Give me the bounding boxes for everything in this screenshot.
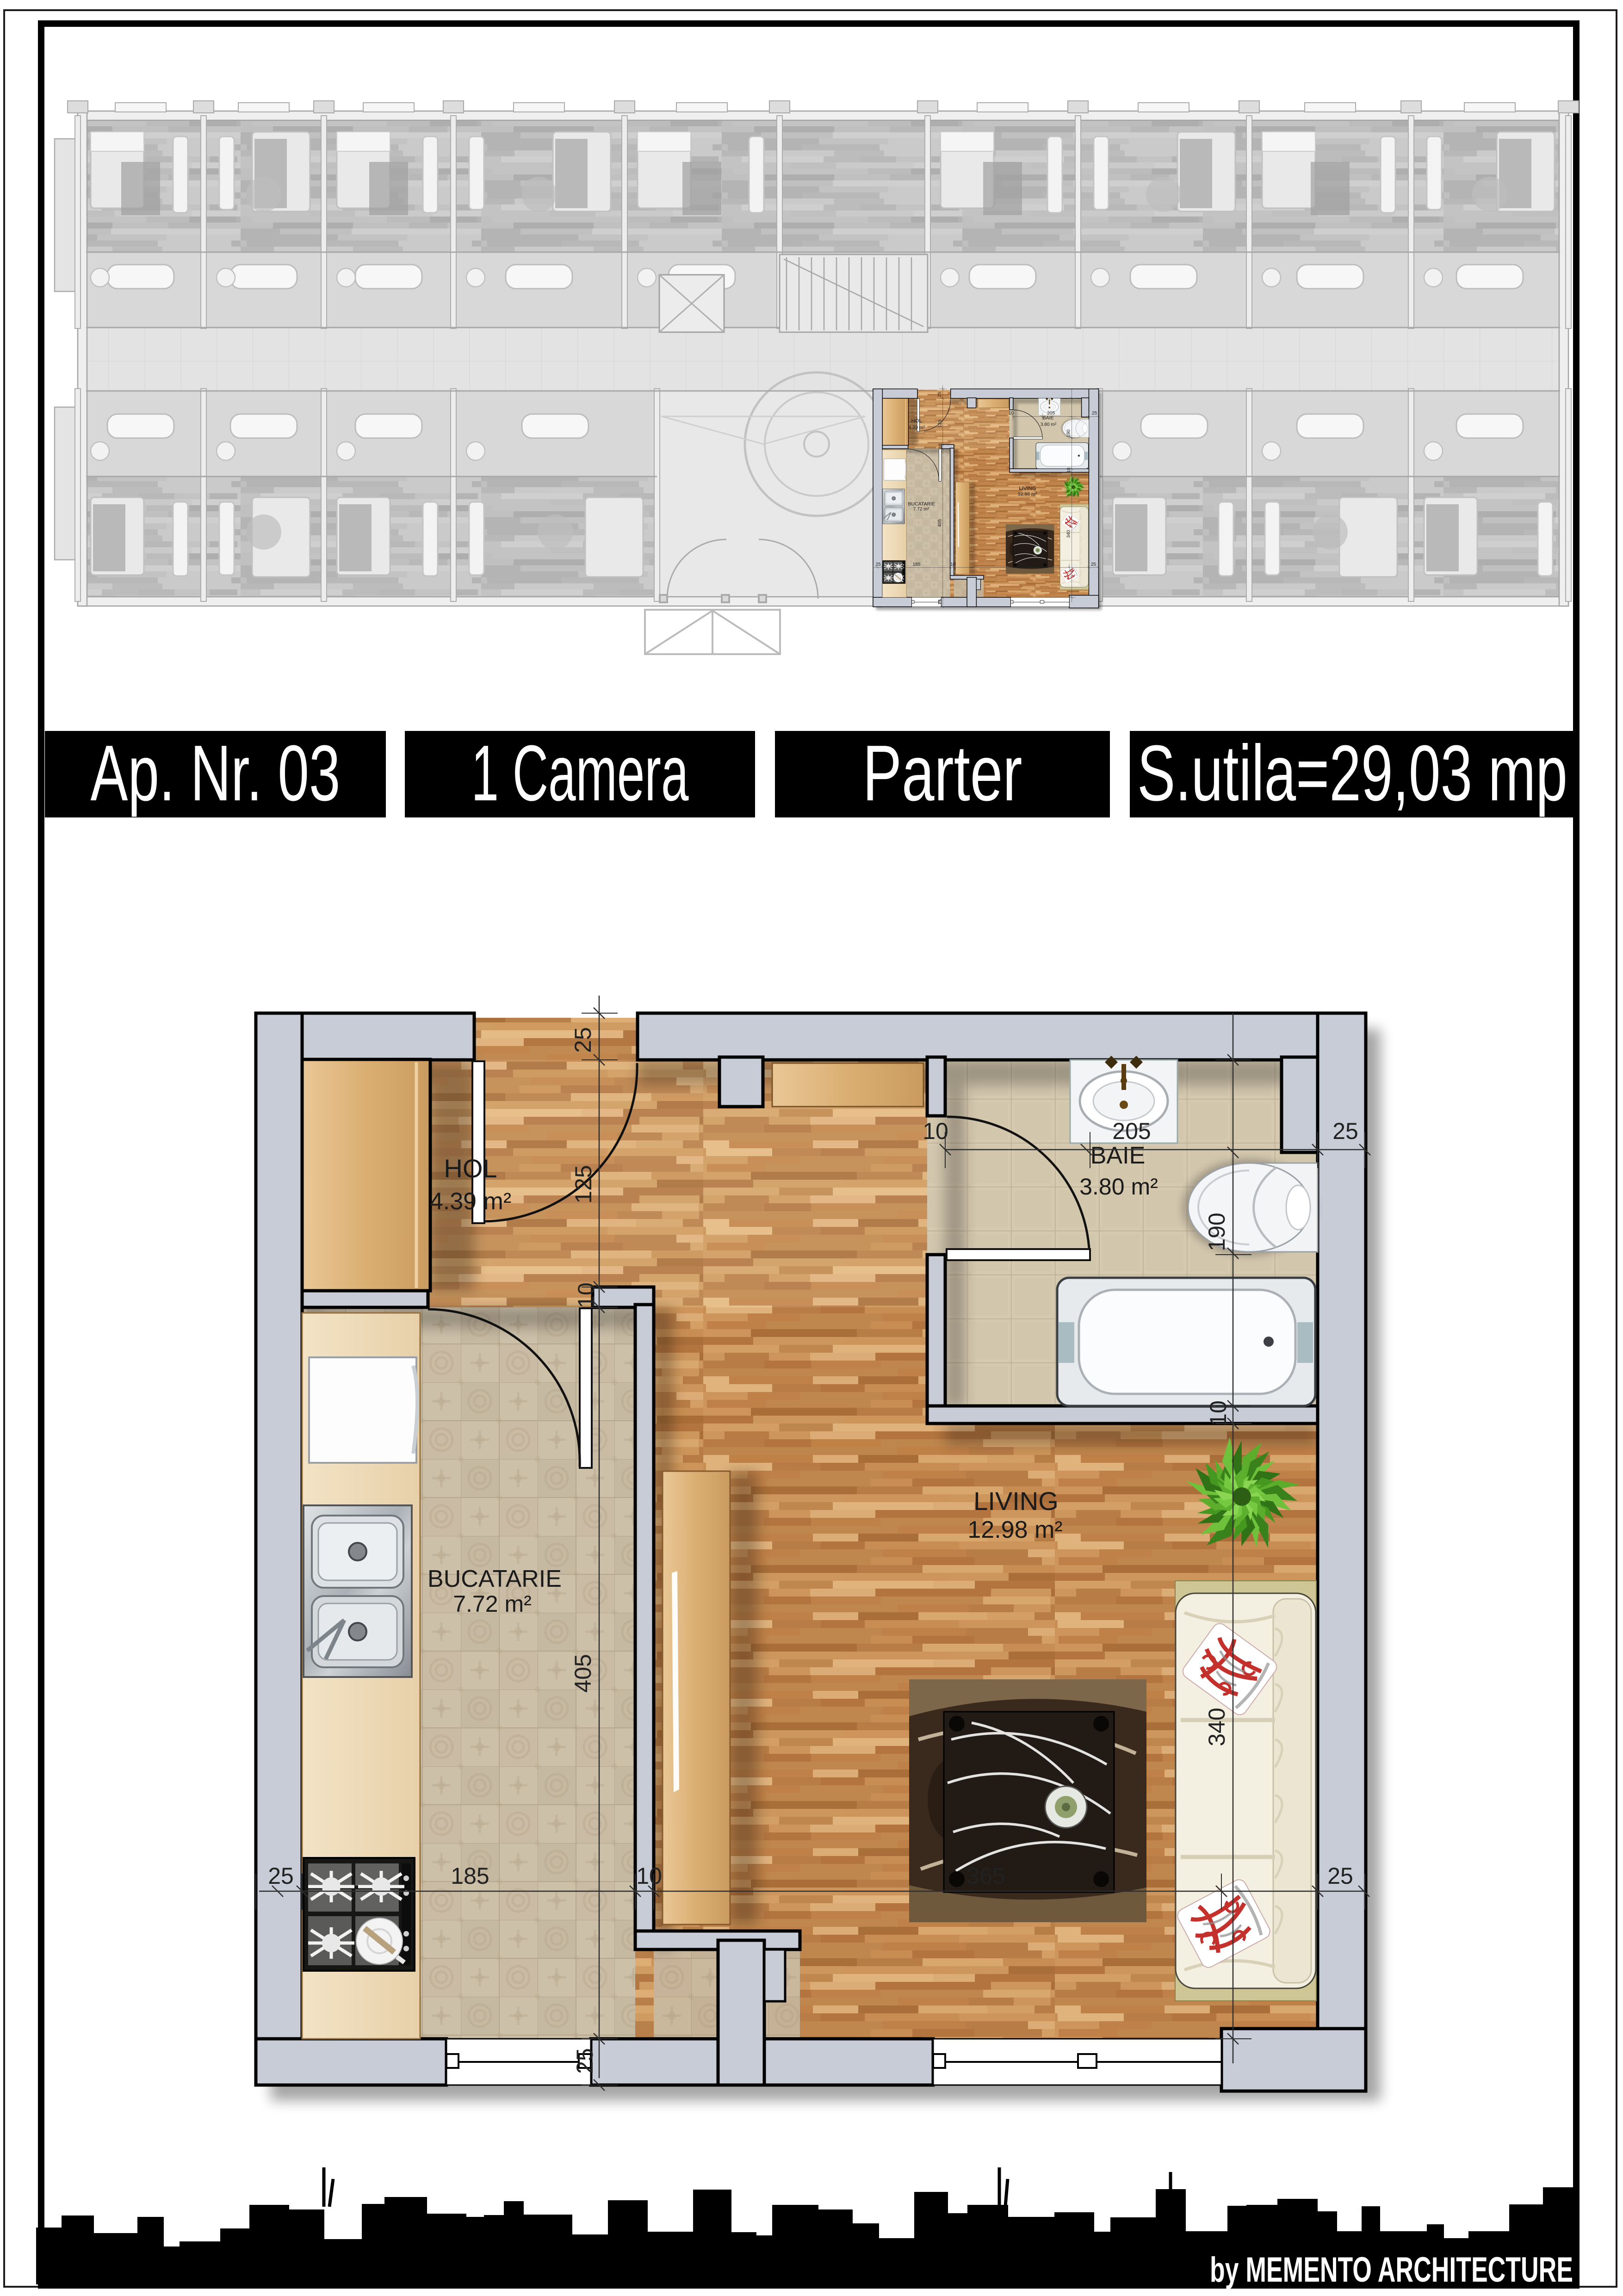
- svg-text:10: 10: [636, 1863, 662, 1889]
- svg-text:S.utila=29,03 mp: S.utila=29,03 mp: [1137, 729, 1567, 817]
- svg-text:10: 10: [1205, 1400, 1231, 1426]
- svg-text:BUCATARIE: BUCATARIE: [427, 1566, 562, 1592]
- svg-text:25: 25: [1327, 1863, 1353, 1889]
- svg-text:Parter: Parter: [863, 729, 1022, 817]
- svg-text:340: 340: [1204, 1708, 1230, 1746]
- svg-text:205: 205: [1112, 1118, 1151, 1144]
- svg-text:4.39 m²: 4.39 m²: [430, 1188, 511, 1215]
- svg-text:125: 125: [570, 1165, 596, 1203]
- svg-text:Ap. Nr. 03: Ap. Nr. 03: [91, 729, 341, 817]
- svg-text:25: 25: [570, 1027, 596, 1053]
- svg-text:190: 190: [1204, 1213, 1230, 1251]
- svg-text:BAIE: BAIE: [1090, 1142, 1146, 1169]
- svg-text:LIVING: LIVING: [973, 1486, 1059, 1516]
- svg-text:10: 10: [923, 1118, 948, 1144]
- svg-text:365: 365: [966, 1863, 1005, 1889]
- svg-text:25: 25: [1332, 1118, 1358, 1144]
- svg-text:10: 10: [573, 1282, 599, 1308]
- svg-text:7.72 m²: 7.72 m²: [453, 1591, 532, 1617]
- svg-text:by MEMENTO ARCHITECTURE: by MEMENTO ARCHITECTURE: [1210, 2250, 1573, 2290]
- svg-text:405: 405: [570, 1654, 596, 1692]
- svg-text:1 Camera: 1 Camera: [471, 729, 689, 817]
- svg-text:3.80 m²: 3.80 m²: [1079, 1174, 1158, 1200]
- svg-text:12.98 m²: 12.98 m²: [967, 1516, 1062, 1543]
- svg-text:HOL: HOL: [444, 1154, 497, 1183]
- svg-text:25: 25: [268, 1863, 294, 1889]
- svg-text:185: 185: [451, 1863, 489, 1889]
- svg-text:25: 25: [572, 2048, 598, 2074]
